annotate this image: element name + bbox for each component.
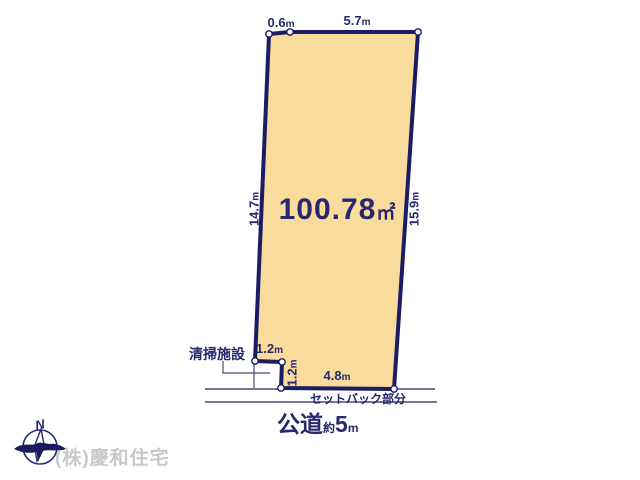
vertex-dot [278, 385, 284, 391]
plot-area-label: 100.78㎡ [279, 193, 396, 227]
land-plot-diagram: N 0.6m 5.7m 14.7m 15.9m 1.2m 1.2m 4.8m 1… [0, 0, 640, 480]
road-name: 公道 [277, 411, 323, 437]
dimension-value: 5.7 [344, 13, 362, 28]
dimension-unit: m [289, 360, 300, 369]
dimension-value: 1.2 [256, 341, 274, 356]
dimension-top: 5.7m [344, 13, 371, 28]
area-value: 100.78 [279, 193, 377, 226]
company-watermark: (株)慶和住宅 [55, 443, 170, 470]
dimension-notch-height: 1.2m [285, 360, 300, 387]
road-unit: m [348, 421, 359, 435]
dimension-unit: m [342, 372, 351, 383]
vertex-dot [415, 29, 421, 35]
area-unit: ㎡ [376, 203, 395, 224]
road-label: 公道約5m [277, 405, 358, 439]
dimension-unit: m [274, 345, 283, 356]
dimension-left: 14.7m [247, 192, 262, 226]
vertex-dot [252, 358, 258, 364]
dimension-unit: m [411, 192, 422, 201]
dimension-bottom: 4.8m [324, 368, 351, 383]
dimension-notch-width: 1.2m [256, 341, 283, 356]
dimension-value: 14.7 [247, 201, 262, 226]
dimension-unit: m [251, 192, 262, 201]
road-value: 5 [335, 411, 348, 437]
dimension-unit: m [362, 17, 371, 28]
road-approx: 約 [323, 421, 335, 435]
dimension-value: 0.6 [268, 15, 286, 30]
dimension-value: 15.9 [407, 201, 422, 226]
dimension-top-left: 0.6m [268, 15, 295, 30]
vertex-dot [266, 31, 272, 37]
dimension-value: 1.2 [285, 368, 300, 386]
dimension-right: 15.9m [407, 192, 422, 226]
facility-label: 清掃施設 [189, 344, 245, 364]
dimension-unit: m [286, 19, 295, 30]
dimension-value: 4.8 [324, 368, 342, 383]
compass-north-label: N [34, 416, 47, 433]
